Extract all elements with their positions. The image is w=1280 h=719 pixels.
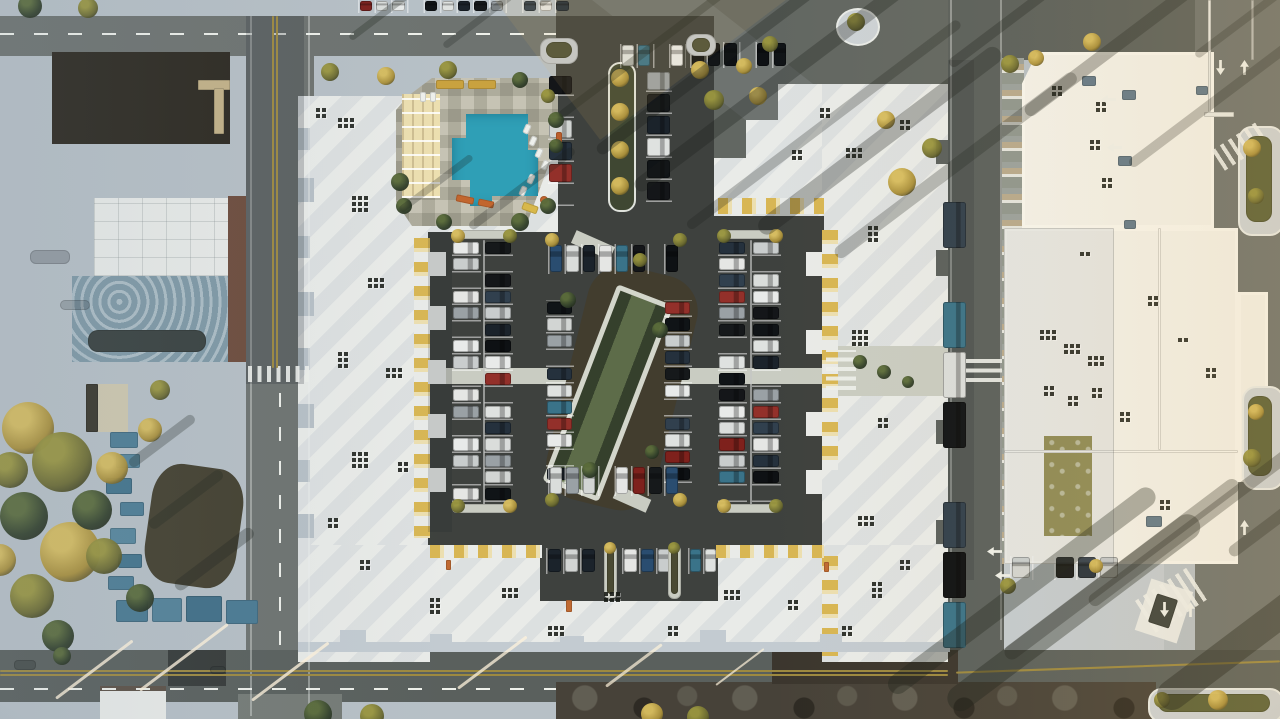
roof-vent-cluster <box>604 592 622 604</box>
car <box>665 368 690 381</box>
tree <box>1001 55 1019 73</box>
roof-vent <box>1086 252 1090 256</box>
roof-vent <box>338 118 342 122</box>
lot-stain <box>60 300 90 310</box>
tree <box>96 452 128 484</box>
roof-vent <box>798 150 802 154</box>
roof-vent <box>328 524 332 528</box>
car <box>719 307 745 319</box>
roof-vent <box>848 632 852 636</box>
roof-vent <box>1044 392 1048 396</box>
car <box>453 340 479 352</box>
roof-vent-cluster <box>858 516 876 528</box>
roof-vent <box>1160 500 1164 504</box>
roof-vent <box>874 226 878 230</box>
roof-vent <box>1050 386 1054 390</box>
car <box>753 356 779 368</box>
roof-vent <box>1148 302 1152 306</box>
roof-vent <box>858 336 862 340</box>
roof-vent <box>436 610 440 614</box>
car <box>565 549 578 572</box>
roof-vent <box>404 468 408 472</box>
right-building-north <box>1022 52 1214 228</box>
roof-vent <box>322 114 326 118</box>
roof-vent <box>858 522 862 526</box>
tree <box>360 704 384 719</box>
roof-vent <box>1046 336 1050 340</box>
roof-vent-cluster <box>900 120 912 132</box>
roof-vent <box>1046 330 1050 334</box>
roof-vent <box>878 424 882 428</box>
tree <box>922 138 942 158</box>
tree <box>611 141 629 159</box>
chimney-accent <box>566 600 572 612</box>
roof-vent-cluster <box>1148 296 1160 308</box>
roof-vent <box>328 518 332 522</box>
roof-vent-cluster <box>868 226 880 244</box>
roof-vent <box>398 462 402 466</box>
roof-vent <box>900 560 904 564</box>
roof-vent <box>392 374 396 378</box>
tree <box>1154 692 1170 708</box>
roof-vent <box>1052 330 1056 334</box>
tree <box>1243 449 1261 467</box>
island-planting <box>546 42 572 58</box>
roof-vent <box>514 594 518 598</box>
roof-vent <box>352 208 356 212</box>
roof-vent-cluster <box>1068 396 1080 408</box>
car <box>719 471 745 483</box>
tree <box>72 490 112 530</box>
roof-vent <box>1064 350 1068 354</box>
roof-vent <box>1166 506 1170 510</box>
roof-vent <box>852 342 856 346</box>
tree <box>717 499 731 513</box>
roof-vent-cluster <box>1102 178 1114 190</box>
car <box>719 356 745 368</box>
roof-vent <box>1120 412 1124 416</box>
roof-vent-cluster <box>1064 344 1082 356</box>
parking-row <box>452 240 481 502</box>
roof-vent <box>352 202 356 206</box>
roof-vent <box>1092 388 1096 392</box>
roof-vent-cluster <box>788 600 800 612</box>
car <box>548 549 561 572</box>
roof-vent <box>1076 350 1080 354</box>
roof-vent <box>344 124 348 128</box>
car <box>753 455 779 467</box>
car <box>647 116 670 134</box>
parking-row <box>484 240 513 502</box>
parking-row <box>546 300 574 483</box>
car <box>753 324 779 336</box>
roof-vent <box>366 566 370 570</box>
parking-row <box>548 244 681 274</box>
roof-vent-cluster <box>316 108 328 120</box>
roof-vent <box>1088 356 1092 360</box>
tree <box>633 253 647 267</box>
car <box>753 291 779 303</box>
tree <box>611 69 629 87</box>
tree <box>377 67 395 85</box>
tree <box>1089 559 1103 573</box>
car <box>719 258 745 270</box>
car <box>671 45 683 66</box>
tree <box>853 355 867 369</box>
roof-vent <box>316 114 320 118</box>
car <box>719 324 745 336</box>
car <box>638 45 650 66</box>
roof-vent <box>674 626 678 630</box>
car <box>666 467 679 494</box>
tree <box>10 574 54 618</box>
stall-spine <box>750 240 752 506</box>
car <box>943 552 966 598</box>
car <box>583 245 596 272</box>
parking-row <box>548 466 681 496</box>
tree <box>769 499 783 513</box>
car <box>566 245 579 272</box>
building-shadow-left-road <box>246 16 304 384</box>
parking-row <box>546 548 597 574</box>
car <box>540 1 552 11</box>
roof-vent <box>864 336 868 340</box>
roof-vent <box>322 108 326 112</box>
car <box>485 291 511 303</box>
lot-stain <box>30 250 70 264</box>
roof-vent <box>352 464 356 468</box>
island-planting <box>607 550 614 594</box>
roof-vent <box>508 588 512 592</box>
bare-soil-patch <box>140 460 248 592</box>
roof-vent <box>858 148 862 152</box>
car <box>665 351 690 364</box>
roof-vent <box>1098 388 1102 392</box>
roof-vent-cluster <box>1206 368 1218 380</box>
tree <box>138 418 162 442</box>
tree <box>645 445 659 459</box>
car <box>753 438 779 450</box>
roof-vent <box>430 598 434 602</box>
roof-vent <box>1212 368 1216 372</box>
tree <box>396 198 412 214</box>
car <box>622 45 634 66</box>
roof-vent <box>1096 102 1100 106</box>
tree <box>548 112 564 128</box>
car <box>453 291 479 303</box>
lane-dashes-left <box>279 380 281 645</box>
car <box>425 1 437 11</box>
roof-vent-cluster <box>792 150 804 162</box>
roof-vent <box>1102 108 1106 112</box>
roof-vent <box>820 114 824 118</box>
courtyard-west-shade <box>428 232 452 532</box>
tree <box>902 376 914 388</box>
roof-vent <box>360 560 364 564</box>
roof-vent <box>560 626 564 630</box>
roof-vent-cluster <box>1052 86 1064 98</box>
tree <box>391 173 409 191</box>
roof-vent <box>842 632 846 636</box>
car <box>453 242 479 254</box>
parking-row <box>942 200 968 650</box>
roof-vent-cluster <box>548 626 566 638</box>
roof-vent <box>820 108 824 112</box>
roof-vent <box>846 154 850 158</box>
tree <box>439 61 457 79</box>
car <box>647 160 670 178</box>
roof-vent-cluster <box>878 418 890 430</box>
roof-vent <box>358 464 362 468</box>
aerial-photo <box>0 0 1280 719</box>
roof-vent <box>430 604 434 608</box>
car <box>453 438 479 450</box>
roof-vent-cluster <box>352 196 370 214</box>
roof-vent <box>386 374 390 378</box>
tree <box>541 89 555 103</box>
roof-vent <box>1074 396 1078 400</box>
tree <box>560 292 576 308</box>
roof-vent <box>794 606 798 610</box>
roof-vent-cluster <box>842 626 854 638</box>
roof-vent <box>1178 338 1182 342</box>
roof-vent <box>392 368 396 372</box>
roof-vent <box>364 208 368 212</box>
roof-vent <box>398 374 402 378</box>
balcony-tab <box>806 412 822 436</box>
roof-vent <box>736 596 740 600</box>
roof-notch <box>298 404 314 428</box>
parking-row <box>664 300 692 483</box>
roof-vent <box>358 202 362 206</box>
industrial-dark-roof <box>52 52 230 144</box>
car <box>392 1 404 11</box>
hvac-unit <box>1196 86 1208 95</box>
roof-vent <box>358 196 362 200</box>
stall-spine <box>483 240 485 506</box>
roof-vent <box>1126 418 1130 422</box>
roof-vent <box>436 604 440 608</box>
roof-vent-cluster <box>1096 102 1108 114</box>
roof-vent <box>1074 402 1078 406</box>
roof-vent <box>352 458 356 462</box>
roof-vent <box>604 592 608 596</box>
car <box>485 324 511 336</box>
car <box>556 1 568 11</box>
roof-vent <box>842 626 846 630</box>
parapet-line <box>1158 228 1161 450</box>
car <box>719 455 745 467</box>
pool-cabana <box>436 80 464 89</box>
car <box>624 549 637 572</box>
roof-vent <box>1090 146 1094 150</box>
roof-vent-cluster <box>1088 356 1106 368</box>
roof-vent <box>1126 412 1130 416</box>
roof-vent-cluster <box>386 368 404 380</box>
roof-vent <box>610 598 614 602</box>
car <box>753 242 779 254</box>
roof-vent <box>906 560 910 564</box>
dumpster <box>152 598 182 622</box>
car <box>666 245 679 272</box>
roof-notch <box>298 514 314 538</box>
chimney-accent <box>446 560 451 570</box>
roof-vent <box>872 588 876 592</box>
roof-vent <box>338 364 342 368</box>
roof-vent-cluster <box>1178 338 1190 344</box>
hvac-unit <box>1124 220 1136 229</box>
roof-vent-cluster <box>1090 140 1102 152</box>
car <box>485 455 511 467</box>
roof-vent <box>334 518 338 522</box>
tree <box>53 647 71 665</box>
pool-lounger <box>430 92 436 102</box>
roof-vent <box>870 516 874 520</box>
car <box>547 434 572 447</box>
tree <box>717 229 731 243</box>
car <box>665 434 690 447</box>
roof-vent <box>878 582 882 586</box>
car <box>943 202 966 248</box>
roof-vent <box>514 588 518 592</box>
roof-vent <box>1052 86 1056 90</box>
tree <box>1208 690 1228 710</box>
roof-vent <box>358 208 362 212</box>
lane-line <box>1208 0 1211 112</box>
car <box>647 72 670 90</box>
hvac-unit <box>1122 90 1136 100</box>
roof-vent-cluster <box>368 278 386 290</box>
tree <box>436 214 452 230</box>
tree <box>847 13 865 31</box>
roof-vent <box>730 590 734 594</box>
roof-vent <box>398 368 402 372</box>
car <box>582 549 595 572</box>
roof-vent <box>852 148 856 152</box>
roof-vent <box>1102 178 1106 182</box>
roof-vent <box>872 594 876 598</box>
bottom-left-building <box>100 686 166 719</box>
roof-vent <box>794 600 798 604</box>
roof-vent <box>616 598 620 602</box>
roof-vent <box>1070 344 1074 348</box>
roof-vent <box>338 124 342 128</box>
tree <box>749 87 767 105</box>
lane-dashes-bottom <box>0 688 556 690</box>
roof-vent <box>1096 108 1100 112</box>
car <box>647 138 670 156</box>
car <box>753 422 779 434</box>
tree <box>545 233 559 247</box>
tree <box>668 542 680 554</box>
tree <box>641 703 663 719</box>
roof-vent <box>1108 178 1112 182</box>
roof-vent <box>1080 252 1084 256</box>
car <box>376 1 388 11</box>
car <box>453 389 479 401</box>
roof-vent <box>792 156 796 160</box>
tree <box>877 111 895 129</box>
car <box>719 274 745 286</box>
roof-vent <box>360 566 364 570</box>
car <box>566 467 579 494</box>
roof-vent <box>788 606 792 610</box>
roof-vent <box>730 596 734 600</box>
roof-vent <box>344 364 348 368</box>
roof-vent <box>604 598 608 602</box>
roof-vent <box>668 626 672 630</box>
car <box>753 307 779 319</box>
roof-vent <box>344 118 348 122</box>
tree <box>545 493 559 507</box>
car <box>665 385 690 398</box>
car <box>550 245 563 272</box>
pool-cabana <box>468 80 496 89</box>
roof-vent <box>358 458 362 462</box>
roof-vent <box>900 566 904 570</box>
car <box>665 318 690 331</box>
roof-vent <box>364 202 368 206</box>
roof-vent <box>1206 374 1210 378</box>
car <box>665 418 690 431</box>
car <box>485 373 511 385</box>
roof-vent <box>868 232 872 236</box>
tree <box>673 233 687 247</box>
roof-vent <box>1040 330 1044 334</box>
roof-vent <box>1102 102 1106 106</box>
tree <box>769 229 783 243</box>
roof-vent <box>368 278 372 282</box>
roof-vent <box>560 632 564 636</box>
roof-vent <box>358 452 362 456</box>
tree <box>86 538 122 574</box>
roof-vent <box>878 594 882 598</box>
roof-vent <box>900 120 904 124</box>
roof-vent <box>852 336 856 340</box>
facade-ne-inner <box>718 198 824 214</box>
roof-vent-cluster <box>338 352 350 370</box>
parking-row <box>752 240 781 502</box>
roof-vent <box>1058 92 1062 96</box>
parking-row <box>688 548 718 574</box>
car <box>665 451 690 464</box>
car <box>485 274 511 286</box>
industrial-rust-building <box>228 196 246 362</box>
car <box>641 549 654 572</box>
tree <box>503 499 517 513</box>
car <box>453 406 479 418</box>
balcony-tab <box>806 330 822 354</box>
roof-vent <box>852 154 856 158</box>
car <box>442 1 454 11</box>
roof-vent <box>1096 146 1100 150</box>
tree <box>736 58 752 74</box>
car <box>719 422 745 434</box>
roof-vent <box>852 330 856 334</box>
car <box>474 1 486 11</box>
roof-vent <box>1090 140 1094 144</box>
roof-vent <box>1076 344 1080 348</box>
car <box>453 455 479 467</box>
roof-vent <box>1120 418 1124 422</box>
roof-vent <box>1070 350 1074 354</box>
roof-vent <box>1212 374 1216 378</box>
tree <box>1248 188 1264 204</box>
roof-vent-cluster <box>1044 386 1056 398</box>
roof-vent <box>1068 396 1072 400</box>
roof-vent <box>868 238 872 242</box>
roof-vent <box>352 452 356 456</box>
